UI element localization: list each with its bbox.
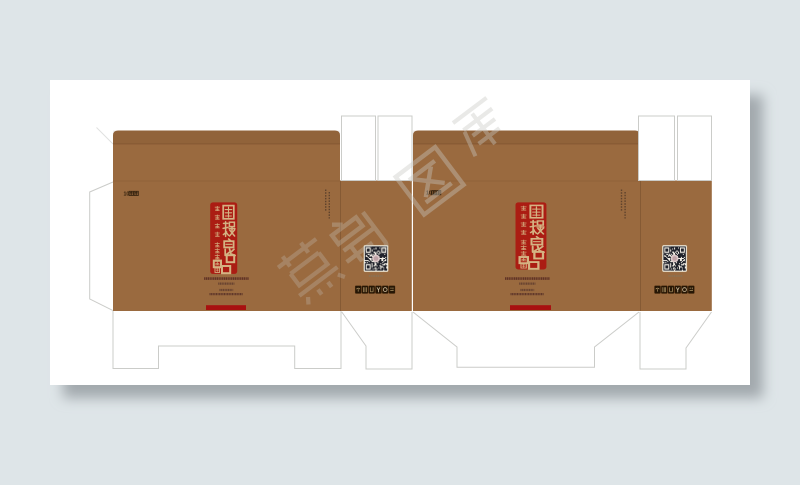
svg-text:10: 10 [124, 191, 130, 197]
